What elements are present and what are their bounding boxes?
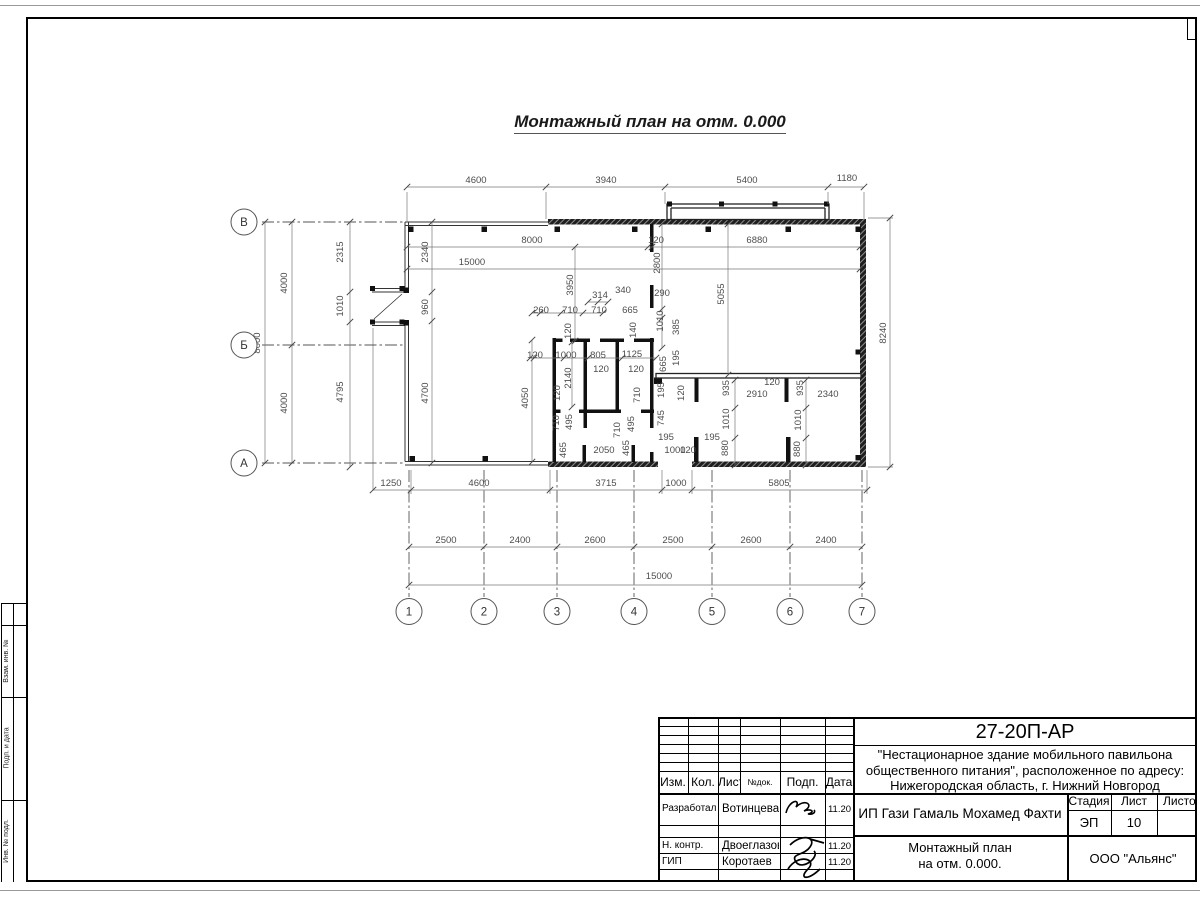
col-ndok: №док. xyxy=(740,771,780,793)
doc-number: 27-20П-АР xyxy=(853,719,1197,745)
signatures xyxy=(780,795,825,883)
project-line: "Нестационарное здание мобильного павиль… xyxy=(855,747,1195,763)
row-date: 11.20 xyxy=(826,803,853,817)
stamp-title-line: на отм. 0.000. xyxy=(853,856,1067,872)
side-label-inv: Инв. № подл. xyxy=(1,800,13,882)
project-line: Нижегородская область, г. Нижний Новгоро… xyxy=(855,778,1195,793)
sheet-label: Лист xyxy=(1111,793,1157,810)
client: ИП Гази Гамаль Мохамед Фахти xyxy=(853,793,1067,835)
drawing-sheet: 4600394054001180800012068801500023409604… xyxy=(0,0,1200,900)
row-role: ГИП xyxy=(659,854,717,870)
row-name: Коротаев xyxy=(719,854,779,870)
project-name: "Нестационарное здание мобильного павиль… xyxy=(855,747,1195,793)
col-list: Лист xyxy=(718,771,740,793)
signature-votintseva xyxy=(786,801,815,814)
stamp-drawing-title: Монтажный план на отм. 0.000. xyxy=(853,840,1067,880)
stage-label: Стадия xyxy=(1067,793,1111,810)
row-date: 11.20 xyxy=(826,840,853,854)
tb-line xyxy=(853,745,1197,746)
col-izm: Изм. xyxy=(658,771,688,793)
side-col-line xyxy=(1,603,26,604)
col-podp: Подп. xyxy=(780,771,825,793)
stage-value: ЭП xyxy=(1067,810,1111,835)
row-role: Н. контр. xyxy=(659,838,717,854)
page-edge-bottom xyxy=(0,890,1200,891)
signature-dvoeglazov-korotaev xyxy=(788,838,824,878)
col-kol: Кол. xyxy=(688,771,718,793)
row-name: Двоеглазов xyxy=(719,838,779,854)
row-role: Разработал xyxy=(659,801,717,817)
side-label-podp: Подп. и дата xyxy=(2,697,14,800)
stamp-title-line: Монтажный план xyxy=(853,840,1067,856)
sheets-value xyxy=(1157,810,1197,835)
row-date: 11.20 xyxy=(826,856,853,870)
project-line: общественного питания", расположенное по… xyxy=(855,763,1195,779)
sheet-value: 10 xyxy=(1111,810,1157,835)
side-label-vzam: Взам. инв. № xyxy=(1,625,13,697)
col-data: Дата xyxy=(825,771,853,793)
company: ООО "Альянс" xyxy=(1069,835,1197,882)
page-edge-top xyxy=(0,5,1200,6)
sheets-label: Листов xyxy=(1157,793,1197,810)
row-name: Вотинцева xyxy=(719,801,779,817)
frame-corner-box xyxy=(1187,17,1197,40)
